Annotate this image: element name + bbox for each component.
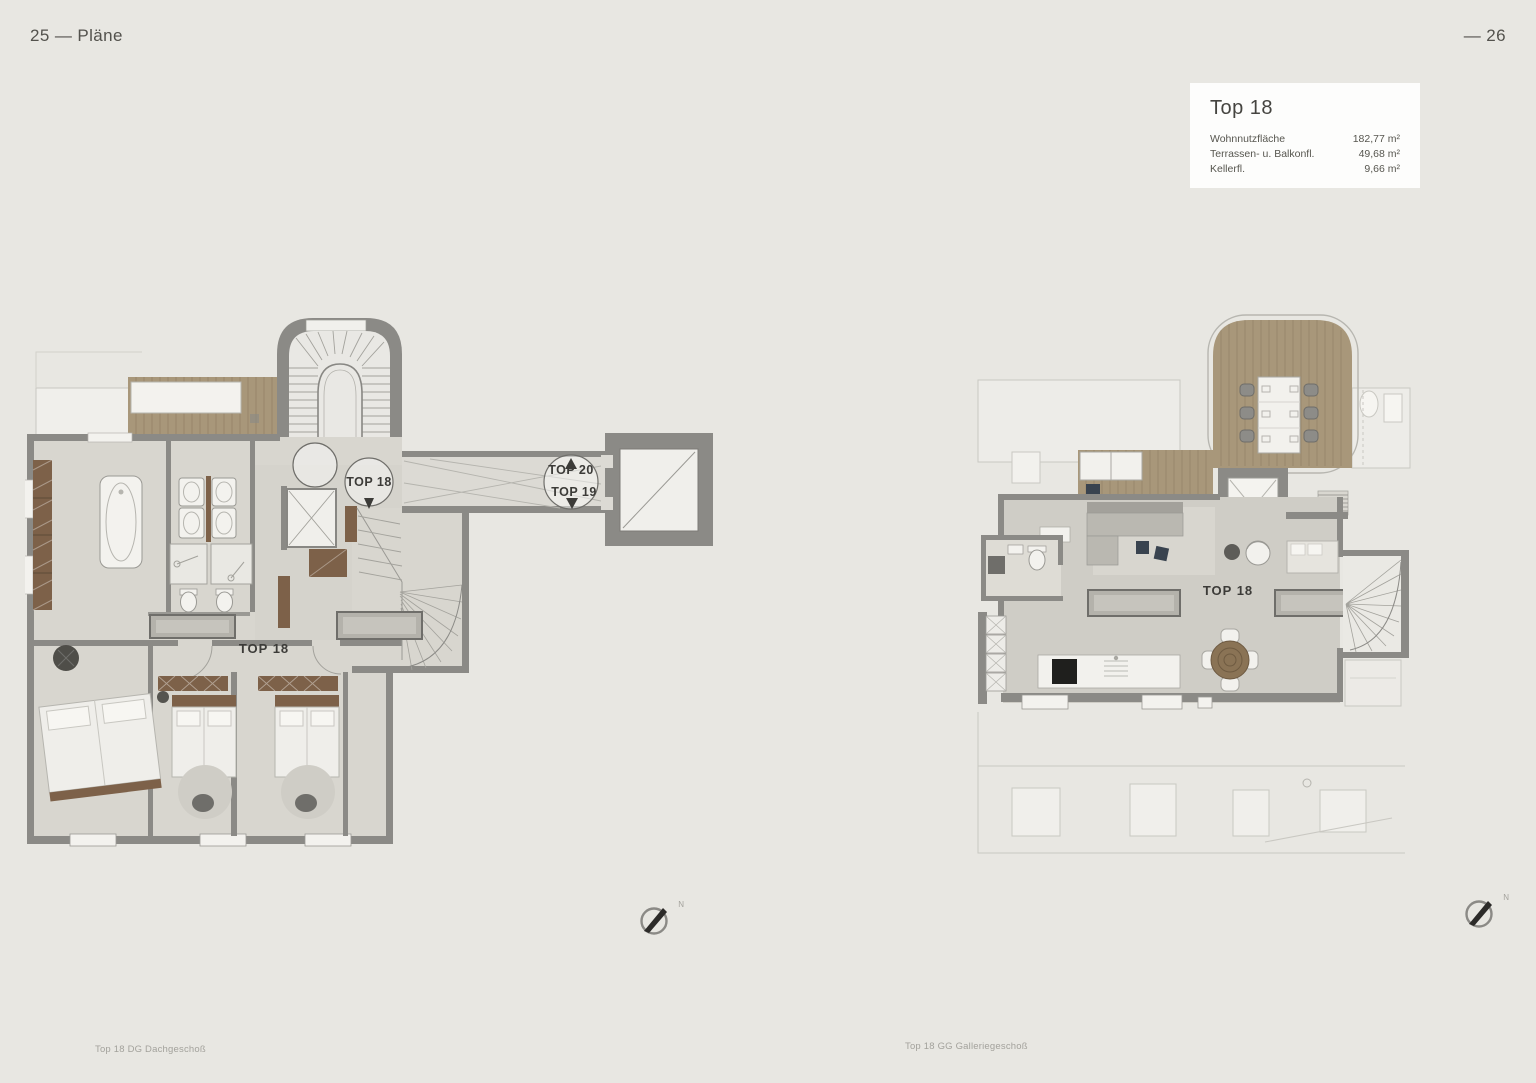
left-plan-circle-label: TOP 18: [346, 475, 392, 489]
left-floor-plan-drawing: [25, 312, 725, 852]
unit-title: Top 18: [1210, 97, 1400, 120]
right-plan-stair: [1343, 550, 1409, 658]
right-floor-plan: [960, 310, 1420, 870]
right-plan-deck-strip: [1078, 450, 1213, 497]
area-label: Wohnnutzfläche: [1210, 132, 1285, 147]
left-plan-elevator: [601, 433, 713, 546]
bathtub-icon: [100, 476, 142, 568]
left-plan-wardrobe: [33, 460, 52, 610]
right-plan-sofa: [1087, 502, 1215, 575]
area-value: 49,68 m²: [1359, 147, 1400, 162]
info-row: Wohnnutzfläche 182,77 m²: [1210, 132, 1400, 147]
right-plan-bathroom: [981, 535, 1063, 601]
left-compass: N: [634, 898, 686, 942]
compass-north-label: N: [1503, 893, 1509, 902]
compass-north-label: N: [678, 900, 684, 909]
area-label: Kellerfl.: [1210, 162, 1245, 177]
page-number-left: 25 — Pläne: [30, 26, 123, 46]
info-row: Kellerfl. 9,66 m²: [1210, 162, 1400, 177]
right-plan-small-room: [1345, 660, 1401, 706]
right-plan-unit-label: TOP 18: [1203, 583, 1253, 598]
vanity-icons: [170, 544, 252, 584]
area-value: 182,77 m²: [1353, 132, 1400, 147]
left-plan-unit-label: TOP 18: [239, 641, 289, 656]
left-plan-shaft: [281, 486, 336, 550]
area-value: 9,66 m²: [1364, 162, 1400, 177]
left-plan-caption: Top 18 DG Dachgeschoß: [95, 1044, 206, 1055]
unit-area-table: Wohnnutzfläche 182,77 m² Terrassen- u. B…: [1210, 132, 1400, 178]
left-plan-underlay: [36, 352, 142, 435]
left-plan-top19-label: TOP 19: [551, 485, 597, 499]
area-label: Terrassen- u. Balkonfl.: [1210, 147, 1314, 162]
page-number-right: — 26: [1464, 26, 1506, 46]
left-floor-plan: [25, 312, 725, 852]
unit-info-box: Top 18 Wohnnutzfläche 182,77 m² Terrasse…: [1190, 83, 1420, 188]
left-plan-top20-label: TOP 20: [548, 463, 594, 477]
right-plan-terrace: [1208, 315, 1358, 473]
info-row: Terrassen- u. Balkonfl. 49,68 m²: [1210, 147, 1400, 162]
right-compass: N: [1459, 891, 1511, 935]
right-floor-plan-drawing: [960, 310, 1420, 870]
right-plan-caption: Top 18 GG Galleriegeschoß: [905, 1041, 1028, 1052]
brochure-page: 25 — Pläne — 26 Top 18 Wohnnutzfläche 18…: [0, 0, 1536, 1083]
